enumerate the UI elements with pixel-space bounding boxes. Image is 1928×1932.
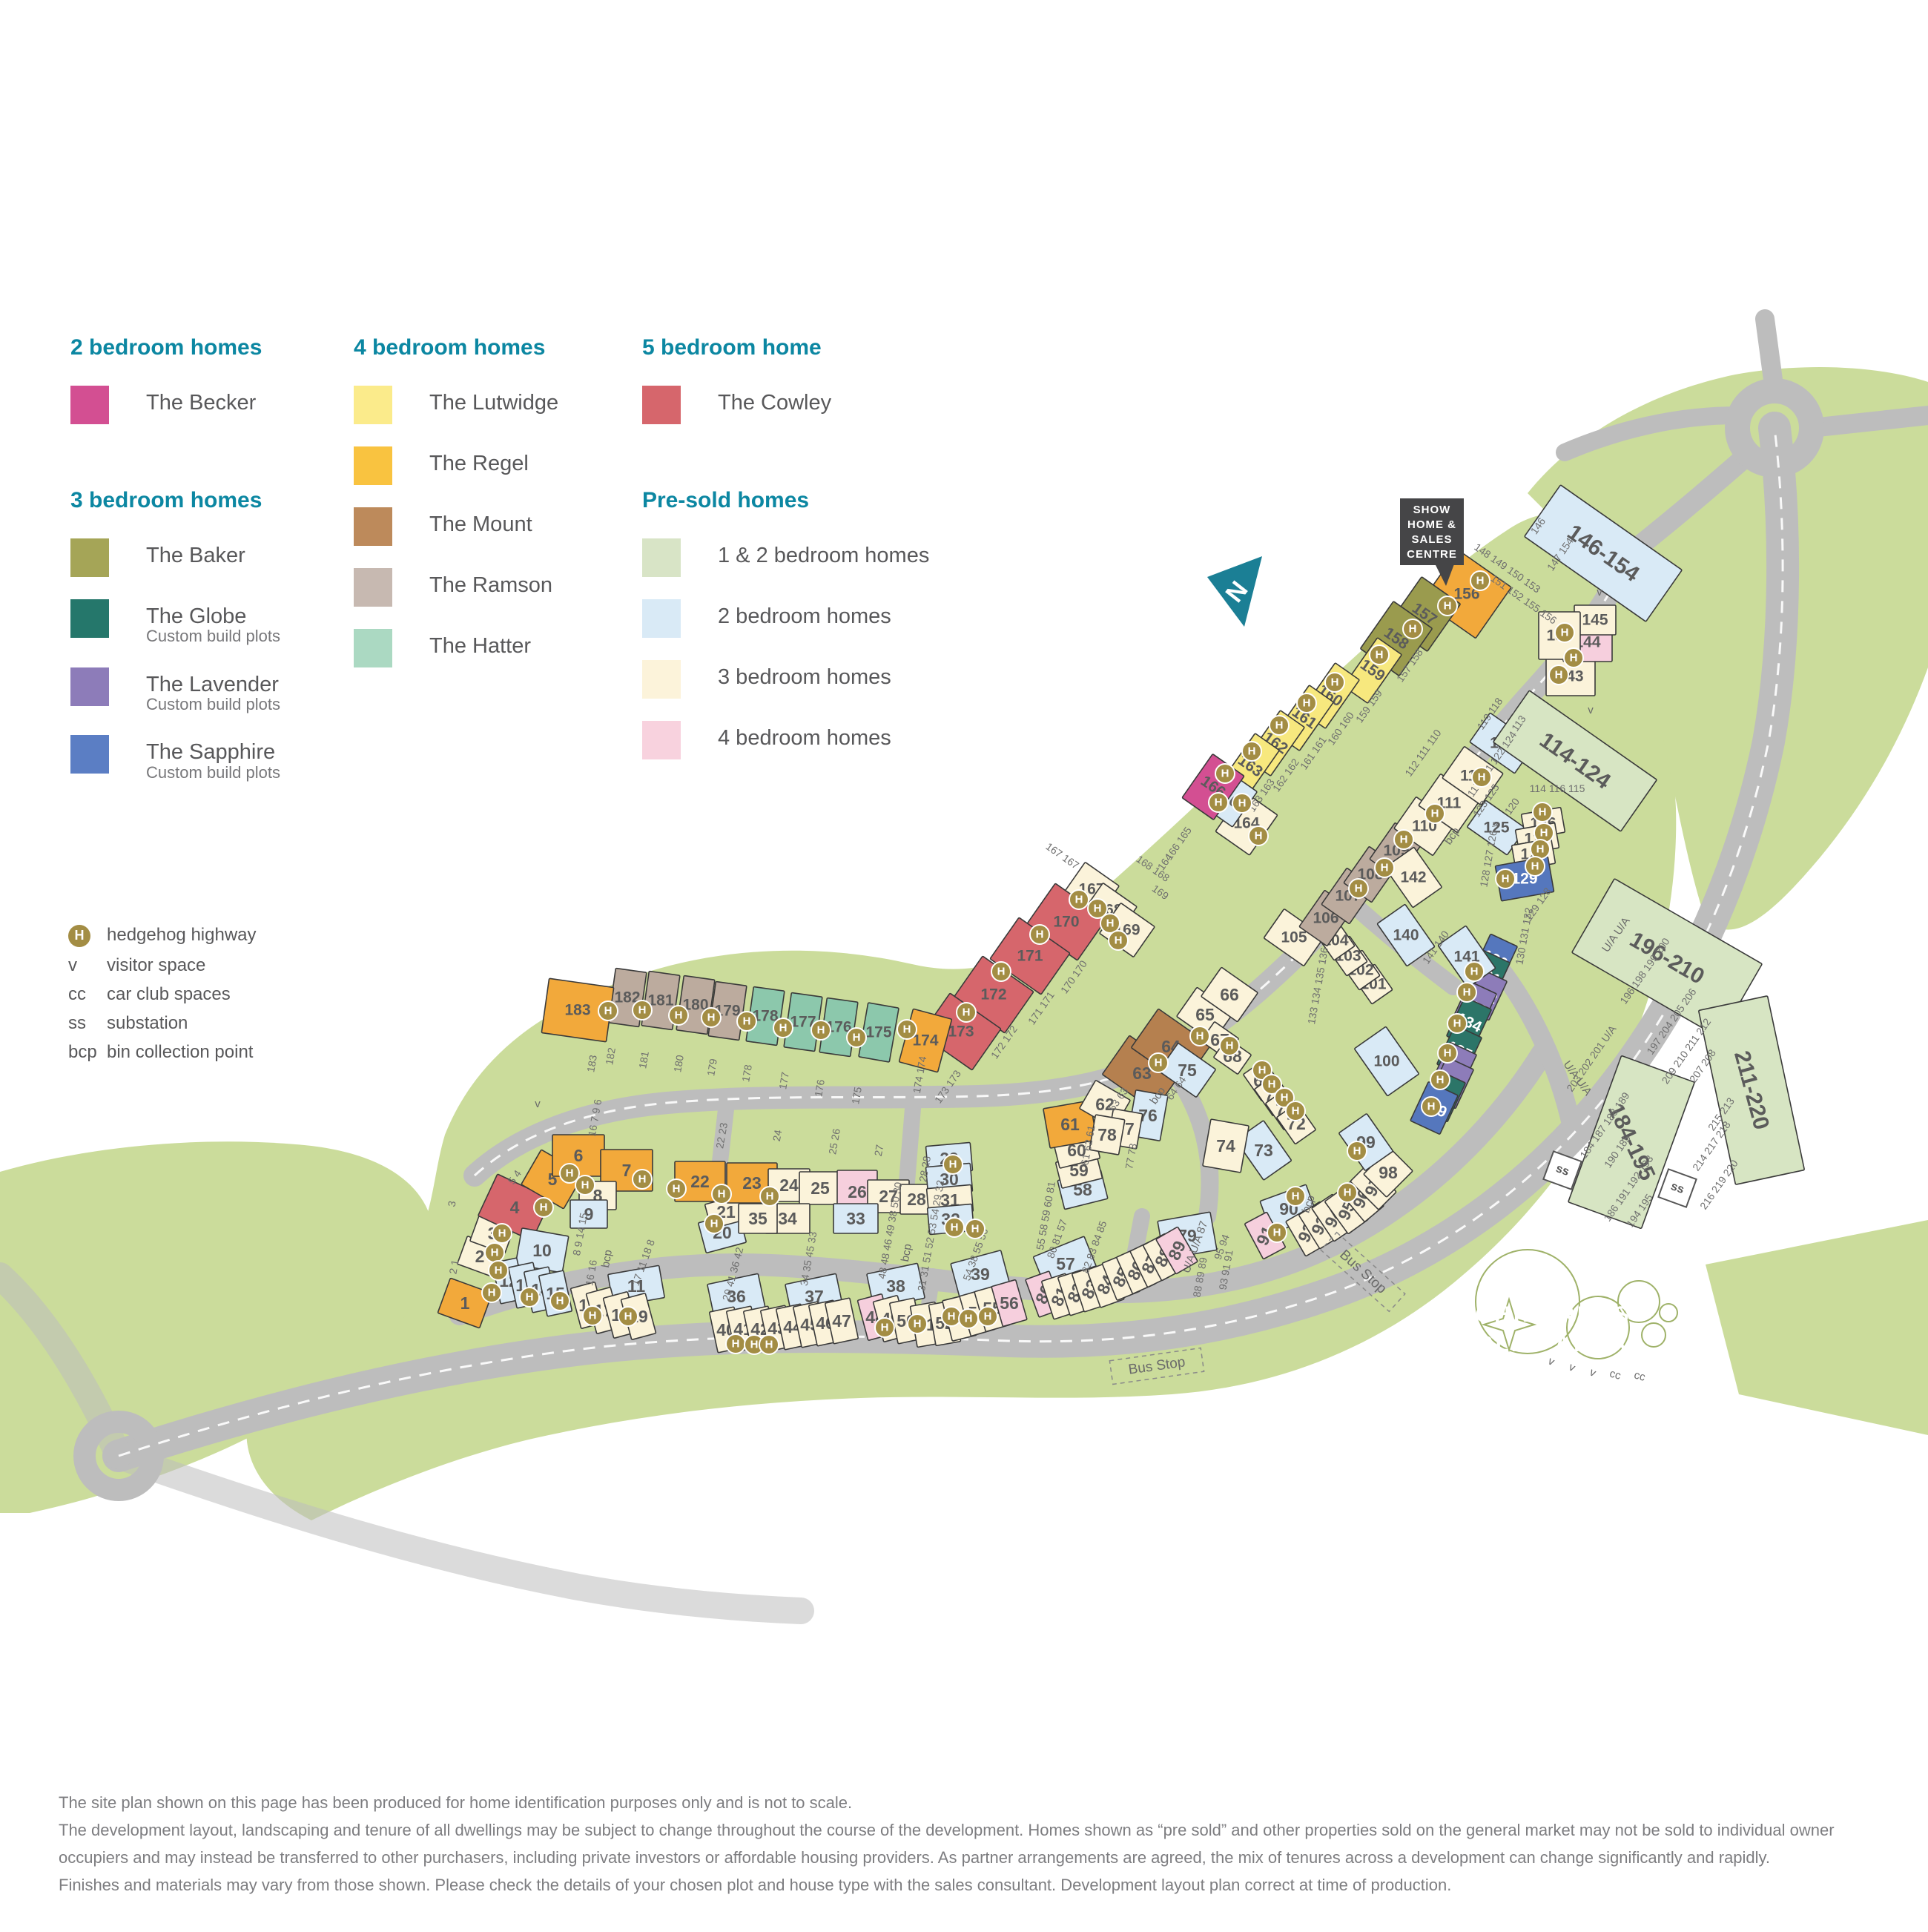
legend-item: The GlobeCustom build plots bbox=[70, 599, 337, 645]
hedgehog-highway-icon: H bbox=[959, 1309, 978, 1328]
legend-item: The Becker bbox=[70, 386, 337, 424]
legend-item: 1 & 2 bedroom homes bbox=[642, 538, 954, 577]
svg-text:H: H bbox=[581, 1179, 590, 1192]
hedgehog-highway-icon: H bbox=[482, 1283, 501, 1302]
map-note-v: v bbox=[1588, 704, 1594, 716]
hedgehog-highway-icon: H bbox=[489, 1261, 508, 1280]
svg-text:33: 33 bbox=[846, 1209, 865, 1228]
svg-text:H: H bbox=[853, 1032, 861, 1044]
map-note-v: v bbox=[1588, 1366, 1598, 1380]
parking-bay-numbers: 114 116 115 bbox=[1530, 782, 1585, 794]
svg-text:140: 140 bbox=[1393, 927, 1419, 944]
svg-text:H: H bbox=[1115, 934, 1123, 947]
hedgehog-highway-icon: H bbox=[1425, 804, 1445, 823]
legend-label: The Baker bbox=[146, 538, 245, 567]
legend-item: The Regel bbox=[354, 446, 621, 485]
svg-text:H: H bbox=[1531, 860, 1539, 873]
parking-bay-numbers: 27 bbox=[872, 1144, 885, 1157]
svg-text:H: H bbox=[1561, 627, 1569, 639]
svg-text:2: 2 bbox=[475, 1247, 485, 1266]
hedgehog-highway-icon: H bbox=[633, 1170, 652, 1189]
map-note-v: v bbox=[1567, 1361, 1577, 1375]
svg-text:H: H bbox=[1427, 1101, 1436, 1113]
plot-25: 25 bbox=[799, 1172, 841, 1204]
map-note-cc: cc bbox=[1633, 1369, 1647, 1384]
svg-text:H: H bbox=[1470, 966, 1479, 978]
svg-text:H: H bbox=[1444, 1047, 1452, 1060]
hedgehog-highway-icon: H bbox=[1525, 857, 1545, 876]
svg-text:H: H bbox=[1476, 575, 1485, 587]
svg-text:SALES: SALES bbox=[1411, 533, 1452, 546]
map-note-v: v bbox=[1597, 586, 1602, 599]
map-note-v: v bbox=[1546, 1355, 1556, 1369]
svg-text:28: 28 bbox=[907, 1190, 926, 1209]
hedgehog-highway-icon: H bbox=[1394, 830, 1413, 849]
svg-text:H: H bbox=[1444, 600, 1452, 613]
svg-text:H: H bbox=[1258, 1064, 1267, 1077]
hedgehog-highway-icon: H bbox=[991, 962, 1011, 981]
svg-text:172: 172 bbox=[980, 986, 1006, 1003]
hedgehog-highway-icon: H bbox=[633, 1000, 652, 1020]
legend-column-3: 5 bedroom homeThe CowleyPre-sold homes1 … bbox=[642, 335, 954, 823]
svg-text:H: H bbox=[743, 1015, 751, 1028]
svg-text:H: H bbox=[1255, 830, 1263, 843]
svg-text:H: H bbox=[1478, 771, 1486, 784]
svg-text:H: H bbox=[1215, 797, 1223, 809]
svg-text:H: H bbox=[1536, 843, 1545, 856]
svg-text:H: H bbox=[1502, 873, 1510, 886]
svg-text:170: 170 bbox=[1053, 914, 1079, 931]
hedgehog-highway-icon: H bbox=[737, 1012, 756, 1031]
svg-text:H: H bbox=[1539, 806, 1547, 819]
legend-swatch bbox=[70, 538, 109, 577]
hedgehog-highway-icon: H bbox=[669, 1006, 688, 1025]
svg-text:H: H bbox=[779, 1022, 788, 1035]
svg-text:H: H bbox=[1570, 652, 1578, 665]
disclaimer-line: The development layout, landscaping and … bbox=[59, 1816, 1883, 1844]
parking-bay-numbers: 24 bbox=[770, 1129, 784, 1142]
svg-text:H: H bbox=[949, 1158, 957, 1171]
svg-text:H: H bbox=[1555, 669, 1563, 682]
svg-text:H: H bbox=[1075, 894, 1083, 906]
hedgehog-highway-icon: H bbox=[965, 1219, 985, 1239]
hedgehog-highway-icon: H bbox=[550, 1291, 570, 1310]
svg-text:H: H bbox=[965, 1313, 973, 1325]
svg-text:H: H bbox=[948, 1310, 956, 1323]
hedgehog-highway-icon: H bbox=[1325, 673, 1344, 692]
svg-text:H: H bbox=[984, 1310, 992, 1323]
svg-text:H: H bbox=[817, 1024, 825, 1037]
hedgehog-highway-icon: H bbox=[520, 1288, 539, 1307]
hedgehog-highway-icon: H bbox=[492, 1224, 512, 1243]
legend-label: The Hatter bbox=[429, 629, 531, 657]
hedgehog-highway-icon: H bbox=[1030, 925, 1049, 944]
svg-text:6: 6 bbox=[574, 1146, 584, 1165]
legend-label: The SapphireCustom build plots bbox=[146, 735, 280, 781]
key-row-substation: sssubstation bbox=[68, 1013, 257, 1034]
svg-text:1: 1 bbox=[460, 1293, 470, 1313]
svg-text:SHOW: SHOW bbox=[1413, 504, 1451, 516]
svg-text:HOME &: HOME & bbox=[1407, 518, 1456, 531]
hedgehog-highway-icon: H bbox=[1447, 1014, 1467, 1033]
hedgehog-highway-icon: H bbox=[701, 1008, 721, 1027]
hedgehog-highway-icon: H bbox=[1297, 693, 1316, 713]
svg-text:H: H bbox=[997, 966, 1006, 978]
legend-label: The Lutwidge bbox=[429, 386, 558, 414]
hedgehog-highway-icon: H bbox=[485, 1243, 504, 1262]
hedgehog-highway-icon: H bbox=[1531, 840, 1550, 859]
hedgehog-highway-icon: H bbox=[1270, 716, 1289, 735]
legend-swatch bbox=[354, 568, 392, 607]
hedgehog-highway-icon: H bbox=[68, 924, 107, 947]
hedgehog-highway-icon: H bbox=[875, 1318, 894, 1337]
legend-sublabel: Custom build plots bbox=[146, 696, 280, 713]
hedgehog-highway-icon: H bbox=[1215, 764, 1235, 783]
key-symbol: v bbox=[68, 955, 107, 976]
svg-text:H: H bbox=[540, 1201, 548, 1214]
hedgehog-highway-icon: H bbox=[583, 1306, 602, 1325]
svg-text:H: H bbox=[488, 1287, 496, 1299]
svg-text:H: H bbox=[638, 1173, 647, 1186]
key-label: substation bbox=[107, 1013, 188, 1034]
svg-text:H: H bbox=[1238, 797, 1247, 810]
svg-text:98: 98 bbox=[1379, 1163, 1398, 1182]
svg-text:H: H bbox=[1094, 903, 1102, 915]
hedgehog-highway-icon: H bbox=[943, 1155, 963, 1174]
legend-swatch bbox=[354, 446, 392, 485]
svg-text:H: H bbox=[971, 1223, 980, 1236]
hedgehog-highway-icon: H bbox=[978, 1307, 997, 1326]
legend-item: The LavenderCustom build plots bbox=[70, 667, 337, 713]
svg-text:22: 22 bbox=[690, 1172, 710, 1191]
key-row-car-club-spaces: cccar club spaces bbox=[68, 984, 257, 1005]
svg-text:H: H bbox=[1344, 1187, 1352, 1199]
hedgehog-highway-icon: H bbox=[598, 1001, 618, 1021]
plot-35: 35 bbox=[739, 1204, 777, 1233]
svg-text:7: 7 bbox=[622, 1161, 632, 1180]
svg-text:PLAY AREA: PLAY AREA bbox=[1478, 1332, 1630, 1356]
hedgehog-highway-icon: H bbox=[847, 1028, 866, 1047]
hedgehog-highway-icon: H bbox=[897, 1020, 917, 1039]
svg-text:26: 26 bbox=[848, 1182, 867, 1201]
svg-text:H: H bbox=[526, 1291, 534, 1304]
legend-label: The Ramson bbox=[429, 568, 552, 596]
key-label: hedgehog highway bbox=[107, 925, 257, 946]
svg-text:H: H bbox=[1376, 649, 1384, 662]
svg-text:175: 175 bbox=[865, 1024, 891, 1041]
hedgehog-highway-icon: H bbox=[1232, 794, 1252, 813]
svg-text:183: 183 bbox=[564, 1002, 590, 1019]
svg-text:H: H bbox=[1292, 1190, 1300, 1203]
substation-box: ss bbox=[1658, 1169, 1696, 1207]
hedgehog-highway-icon: H bbox=[1209, 793, 1228, 812]
legend-item: The Lutwidge bbox=[354, 386, 621, 424]
svg-text:66: 66 bbox=[1220, 985, 1239, 1004]
legend-title-2bed: 2 bedroom homes bbox=[70, 335, 337, 360]
svg-text:25: 25 bbox=[811, 1178, 830, 1198]
svg-text:65: 65 bbox=[1195, 1005, 1215, 1024]
hedgehog-highway-icon: H bbox=[1533, 802, 1552, 822]
svg-text:H: H bbox=[881, 1322, 889, 1334]
svg-text:145: 145 bbox=[1582, 612, 1608, 629]
svg-text:H: H bbox=[556, 1295, 564, 1308]
hedgehog-highway-icon: H bbox=[1555, 623, 1574, 642]
svg-text:CENTRE: CENTRE bbox=[1407, 548, 1457, 561]
svg-text:4: 4 bbox=[510, 1198, 520, 1217]
legend-label: 4 bedroom homes bbox=[718, 721, 891, 749]
symbols-key: Hhedgehog highwayvvisitor spacecccar clu… bbox=[68, 924, 257, 1071]
svg-text:CHILDRENS: CHILDRENS bbox=[1475, 1302, 1631, 1327]
hedgehog-highway-icon: H bbox=[1109, 931, 1128, 950]
key-row-bin-collection-point: bcpbin collection point bbox=[68, 1042, 257, 1063]
key-symbol: ss bbox=[68, 1013, 107, 1034]
svg-text:H: H bbox=[1303, 697, 1311, 710]
hedgehog-highway-icon: H bbox=[1069, 890, 1089, 909]
svg-text:H: H bbox=[1275, 719, 1284, 732]
svg-text:H: H bbox=[624, 1310, 633, 1323]
legend-item: 4 bedroom homes bbox=[642, 721, 954, 759]
legend-swatch bbox=[70, 735, 109, 774]
hedgehog-highway-icon: H bbox=[759, 1335, 779, 1354]
svg-text:H: H bbox=[1540, 827, 1548, 840]
key-row-visitor-space: vvisitor space bbox=[68, 955, 257, 976]
svg-text:24: 24 bbox=[779, 1176, 799, 1195]
legend-item: The Ramson bbox=[354, 568, 621, 607]
svg-text:142: 142 bbox=[1400, 869, 1426, 886]
legend-item: The Baker bbox=[70, 538, 337, 577]
svg-text:H: H bbox=[710, 1218, 719, 1230]
hedgehog-highway-icon: H bbox=[1286, 1187, 1305, 1206]
hedgehog-highway-icon: H bbox=[1338, 1183, 1357, 1202]
svg-text:H: H bbox=[589, 1310, 597, 1322]
legend-title-5bed: 5 bedroom home bbox=[642, 335, 954, 360]
legend-item: 2 bedroom homes bbox=[642, 599, 954, 638]
hedgehog-highway-icon: H bbox=[712, 1184, 731, 1204]
legend-title-4bed: 4 bedroom homes bbox=[354, 335, 621, 360]
hedgehog-highway-icon: H bbox=[1286, 1101, 1305, 1121]
legend-title-3bed: 3 bedroom homes bbox=[70, 488, 337, 513]
svg-text:34: 34 bbox=[778, 1209, 797, 1228]
svg-text:H: H bbox=[732, 1338, 740, 1351]
svg-text:H: H bbox=[491, 1247, 499, 1259]
key-label: visitor space bbox=[107, 955, 205, 976]
north-arrow: N bbox=[1207, 556, 1262, 627]
svg-text:H: H bbox=[1355, 883, 1363, 895]
hedgehog-highway-icon: H bbox=[760, 1187, 779, 1206]
legend-swatch bbox=[642, 721, 681, 759]
hedgehog-highway-icon: H bbox=[1347, 1141, 1367, 1161]
legend-swatch bbox=[642, 599, 681, 638]
svg-text:H: H bbox=[1036, 929, 1044, 941]
svg-text:H: H bbox=[750, 1339, 759, 1351]
hedgehog-highway-icon: H bbox=[1438, 1044, 1457, 1063]
hedgehog-highway-icon: H bbox=[942, 1307, 961, 1326]
hedgehog-highway-icon: H bbox=[1470, 571, 1490, 590]
hedgehog-highway-icon: H bbox=[618, 1307, 638, 1326]
svg-text:H: H bbox=[1196, 1030, 1204, 1043]
hedgehog-highway-icon: H bbox=[1457, 983, 1476, 1002]
svg-text:H: H bbox=[1331, 676, 1339, 689]
disclaimer: The site plan shown on this page has bee… bbox=[59, 1789, 1883, 1899]
hedgehog-highway-icon: H bbox=[1370, 645, 1389, 665]
svg-text:H: H bbox=[1381, 862, 1389, 874]
svg-text:38: 38 bbox=[886, 1276, 905, 1296]
parking-bay-numbers: 2 1 bbox=[447, 1259, 461, 1275]
key-symbol: cc bbox=[68, 984, 107, 1005]
svg-text:H: H bbox=[1106, 917, 1115, 930]
legend-label: The Becker bbox=[146, 386, 256, 414]
legend-label: The GlobeCustom build plots bbox=[146, 599, 280, 645]
svg-text:H: H bbox=[495, 1265, 503, 1277]
hedgehog-highway-icon: H bbox=[575, 1176, 595, 1195]
hedgehog-highway-icon: H bbox=[957, 1003, 976, 1022]
svg-text:H: H bbox=[1155, 1057, 1163, 1069]
svg-text:H: H bbox=[1273, 1227, 1281, 1239]
svg-text:H: H bbox=[1436, 1074, 1445, 1087]
legend-item: The Hatter bbox=[354, 629, 621, 667]
svg-text:173: 173 bbox=[948, 1023, 974, 1041]
plot-33: 33 bbox=[833, 1204, 878, 1233]
plot-211-220: 211-220 bbox=[1699, 996, 1805, 1185]
hedgehog-highway-icon: H bbox=[1267, 1223, 1287, 1242]
legend-swatch bbox=[70, 599, 109, 638]
svg-text:H: H bbox=[707, 1012, 716, 1024]
svg-text:35: 35 bbox=[748, 1209, 767, 1228]
parking-bay-numbers: 167 167 bbox=[1044, 840, 1082, 871]
legend-label: The LavenderCustom build plots bbox=[146, 667, 280, 713]
svg-text:H: H bbox=[718, 1188, 726, 1201]
hedgehog-highway-icon: H bbox=[1422, 1097, 1441, 1116]
svg-text:H: H bbox=[903, 1023, 911, 1036]
hedgehog-highway-icon: H bbox=[1430, 1070, 1450, 1089]
hedgehog-highway-icon: H bbox=[1564, 648, 1583, 667]
svg-text:H: H bbox=[1431, 808, 1439, 820]
hedgehog-highway-icon: H bbox=[811, 1021, 831, 1040]
key-symbol: bcp bbox=[68, 1042, 107, 1063]
legend-swatch bbox=[354, 629, 392, 667]
disclaimer-line: The site plan shown on this page has bee… bbox=[59, 1789, 1883, 1816]
svg-text:H: H bbox=[914, 1318, 922, 1331]
legend-item: The Mount bbox=[354, 507, 621, 546]
svg-text:H: H bbox=[1409, 623, 1417, 636]
hedgehog-highway-icon: H bbox=[667, 1179, 686, 1199]
legend-label: 2 bedroom homes bbox=[718, 599, 891, 627]
legend-column-1: 2 bedroom homesThe Becker3 bedroom homes… bbox=[70, 335, 337, 845]
disclaimer-line: occupiers and may instead be transferred… bbox=[59, 1844, 1883, 1871]
disclaimer-line: Finishes and materials may vary from tho… bbox=[59, 1871, 1883, 1899]
hedgehog-highway-icon: H bbox=[1465, 962, 1484, 981]
hedgehog-highway-icon: H bbox=[1149, 1053, 1168, 1072]
legend-swatch bbox=[642, 386, 681, 424]
legend-item: The Cowley bbox=[642, 386, 954, 424]
legend-label: The Regel bbox=[429, 446, 529, 475]
legend-swatch bbox=[354, 507, 392, 546]
hedgehog-highway-icon: H bbox=[534, 1198, 553, 1217]
hedgehog-highway-icon: H bbox=[908, 1314, 927, 1333]
svg-text:H: H bbox=[1453, 1018, 1462, 1030]
legend-sublabel: Custom build plots bbox=[146, 627, 280, 644]
svg-text:H: H bbox=[1463, 986, 1471, 999]
hedgehog-highway-icon: H bbox=[704, 1214, 724, 1233]
svg-text:H: H bbox=[1400, 834, 1408, 846]
map-note-cc: cc bbox=[1608, 1368, 1622, 1382]
legend-title-presold: Pre-sold homes bbox=[642, 488, 954, 513]
svg-text:100: 100 bbox=[1373, 1053, 1399, 1070]
svg-text:H: H bbox=[766, 1190, 774, 1203]
svg-text:H: H bbox=[1268, 1078, 1276, 1091]
svg-text:105: 105 bbox=[1281, 929, 1307, 946]
legend-label: The Cowley bbox=[718, 386, 831, 414]
svg-text:61: 61 bbox=[1060, 1115, 1080, 1134]
hedgehog-highway-icon: H bbox=[726, 1334, 745, 1354]
svg-text:23: 23 bbox=[742, 1173, 762, 1193]
hedgehog-highway-icon: H bbox=[1190, 1026, 1209, 1046]
legend-sublabel: Custom build plots bbox=[146, 764, 280, 781]
plot-74: 74 bbox=[1203, 1119, 1249, 1173]
hedgehog-highway-icon: H bbox=[945, 1218, 964, 1237]
legend-swatch bbox=[70, 667, 109, 706]
svg-text:174: 174 bbox=[912, 1032, 938, 1049]
key-label: bin collection point bbox=[107, 1042, 253, 1063]
svg-text:10: 10 bbox=[532, 1241, 552, 1260]
svg-text:H: H bbox=[951, 1221, 959, 1234]
key-row-hedgehog-highway: Hhedgehog highway bbox=[68, 924, 257, 947]
hedgehog-highway-icon: H bbox=[1375, 858, 1394, 877]
svg-text:H: H bbox=[604, 1005, 613, 1018]
svg-text:H: H bbox=[1248, 745, 1256, 758]
legend-label: The Mount bbox=[429, 507, 532, 535]
legend-swatch bbox=[642, 538, 681, 577]
svg-text:H: H bbox=[765, 1339, 773, 1351]
svg-text:56: 56 bbox=[1000, 1293, 1019, 1313]
hedgehog-highway-icon: H bbox=[1249, 826, 1268, 845]
svg-text:H: H bbox=[638, 1004, 647, 1017]
key-label: car club spaces bbox=[107, 984, 231, 1005]
svg-text:H: H bbox=[675, 1009, 683, 1022]
hedgehog-highway-icon: H bbox=[1220, 1036, 1239, 1055]
hedgehog-highway-icon: H bbox=[1438, 596, 1457, 616]
hedgehog-highway-icon: H bbox=[1472, 768, 1491, 787]
hedgehog-highway-icon: H bbox=[1349, 879, 1368, 898]
svg-text:74: 74 bbox=[1216, 1136, 1235, 1155]
legend-label: 1 & 2 bedroom homes bbox=[718, 538, 929, 567]
legend-swatch bbox=[70, 386, 109, 424]
svg-text:H: H bbox=[963, 1006, 971, 1019]
svg-text:H: H bbox=[1226, 1040, 1234, 1052]
svg-text:H: H bbox=[498, 1227, 506, 1240]
hedgehog-highway-icon: H bbox=[1496, 869, 1515, 888]
svg-text:57: 57 bbox=[1056, 1254, 1075, 1273]
map-note-v: v bbox=[535, 1098, 541, 1110]
legend-swatch bbox=[354, 386, 392, 424]
svg-text:47: 47 bbox=[832, 1311, 851, 1331]
legend-swatch bbox=[642, 660, 681, 699]
hedgehog-highway-icon: H bbox=[1403, 619, 1422, 639]
svg-text:73: 73 bbox=[1254, 1141, 1273, 1160]
svg-text:H: H bbox=[1221, 768, 1229, 780]
svg-text:H: H bbox=[1292, 1105, 1300, 1118]
svg-text:H: H bbox=[673, 1183, 681, 1196]
hedgehog-highway-icon: H bbox=[1242, 742, 1261, 761]
svg-text:171: 171 bbox=[1017, 948, 1043, 965]
hedgehog-highway-icon: H bbox=[1549, 665, 1568, 685]
hedgehog-highway-icon: H bbox=[773, 1018, 793, 1038]
svg-text:H: H bbox=[1281, 1092, 1289, 1104]
svg-text:H: H bbox=[566, 1167, 574, 1180]
svg-text:H: H bbox=[1353, 1145, 1361, 1158]
legend-column-2: 4 bedroom homesThe LutwidgeThe RegelThe … bbox=[354, 335, 621, 731]
legend-label: 3 bedroom homes bbox=[718, 660, 891, 688]
